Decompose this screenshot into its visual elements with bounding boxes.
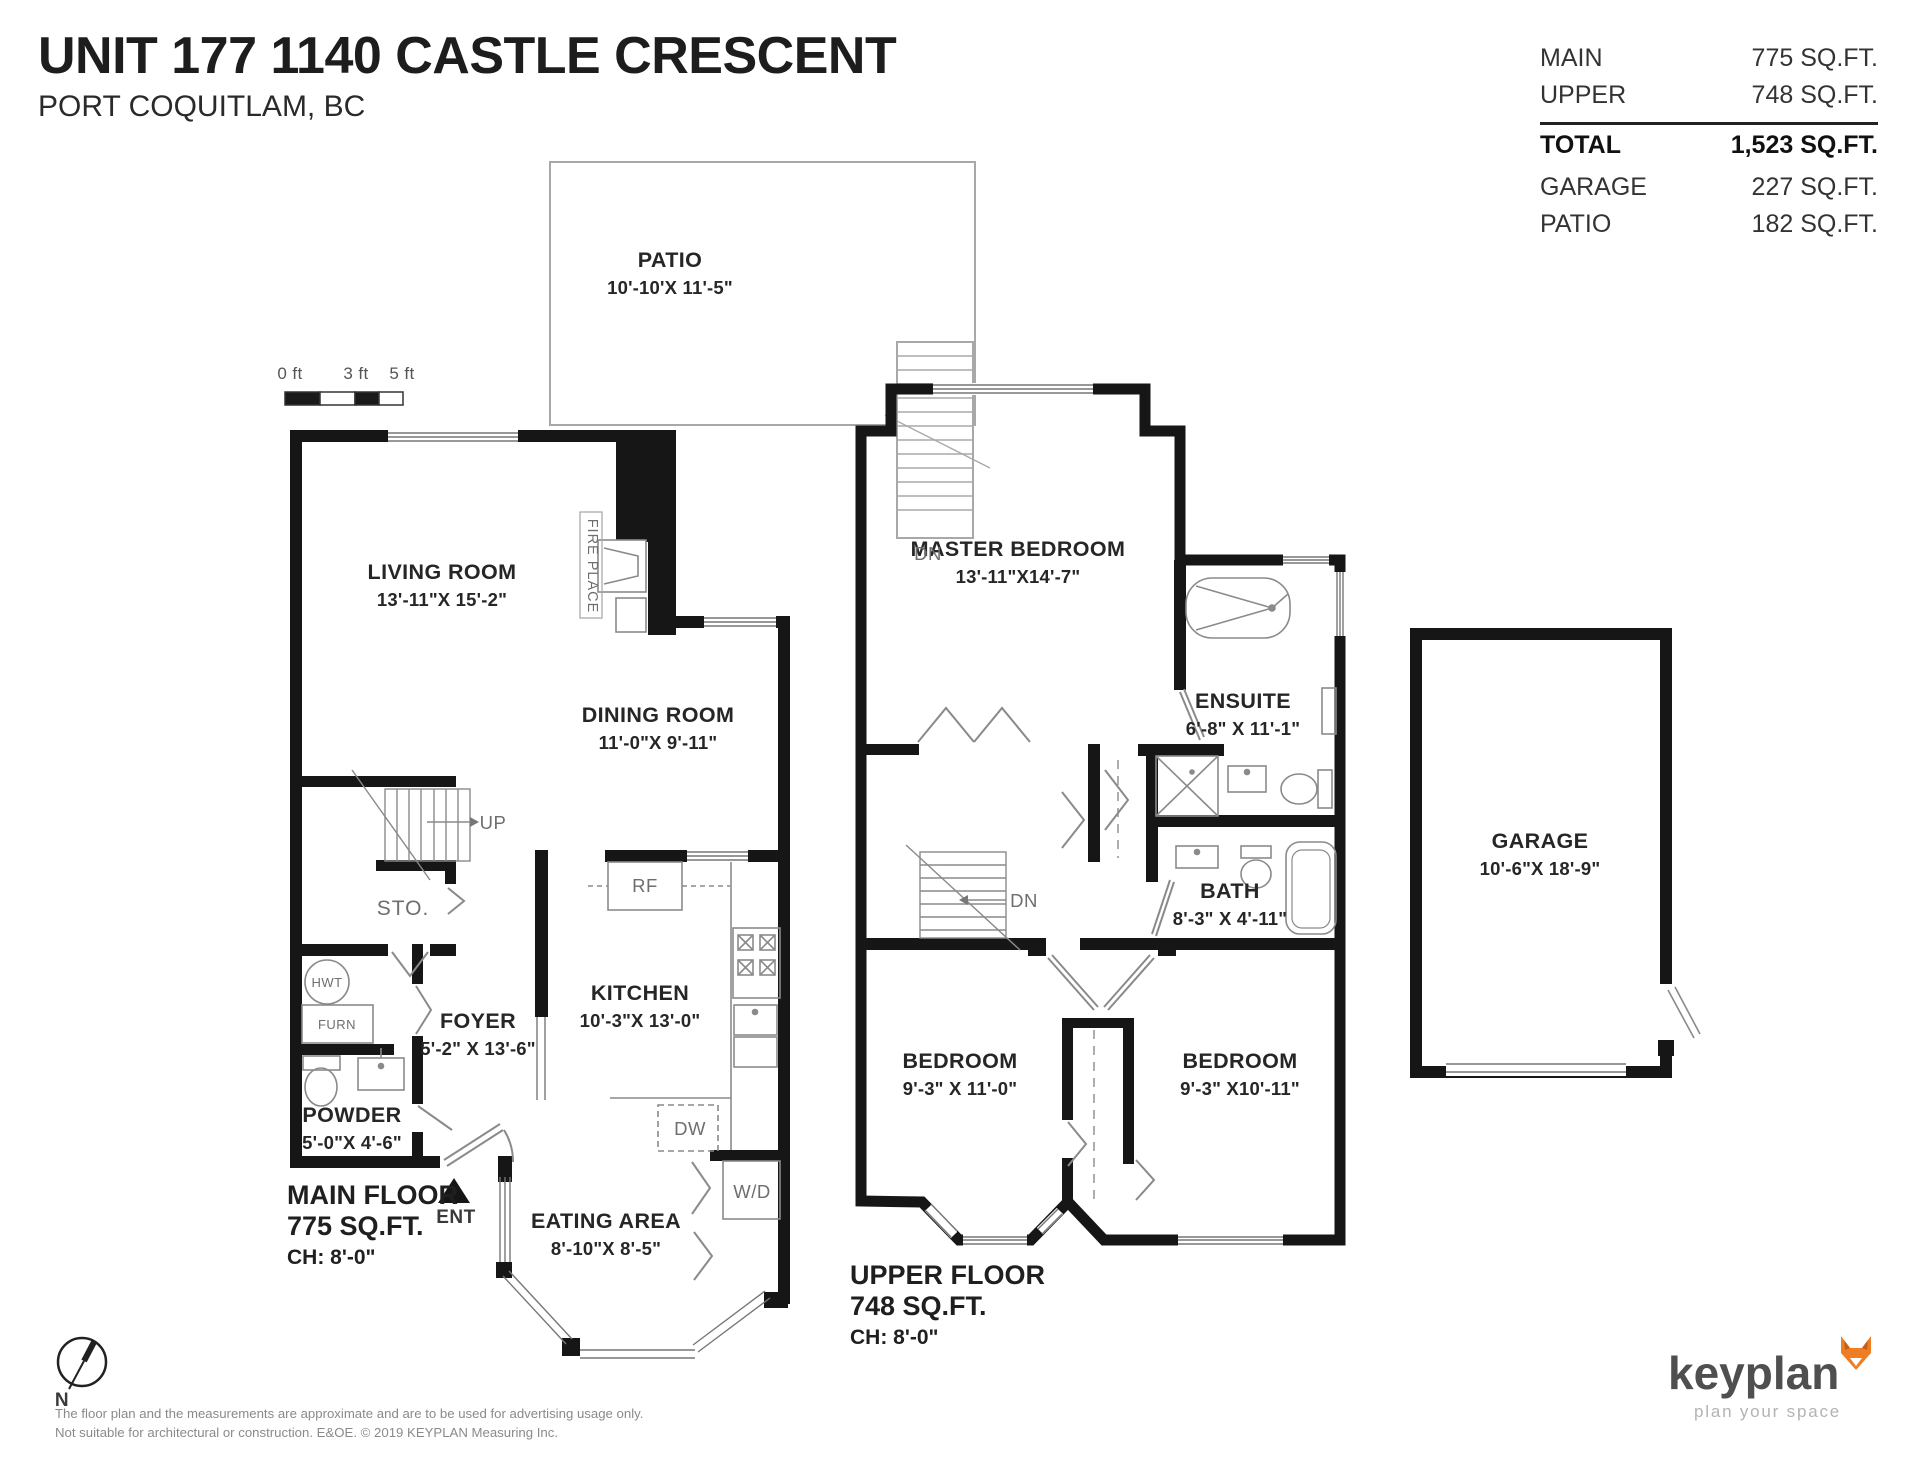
ensuite-door xyxy=(1322,688,1336,734)
label-text: EATING AREA xyxy=(531,1209,681,1234)
area-row-label: GARAGE xyxy=(1540,173,1647,202)
label-text: ENT xyxy=(436,1207,476,1229)
toilet xyxy=(303,1056,340,1106)
garage-label: GARAGE10'-6"X 18'-9" xyxy=(1480,829,1601,880)
kitchen-fixtures xyxy=(588,862,780,1219)
storage-label: STO. xyxy=(377,897,430,921)
area-summary-table: MAIN775 SQ.FT.UPPER748 SQ.FT.TOTAL1,523 … xyxy=(1540,44,1878,247)
label-dimensions: 13'-11"X 15'-2" xyxy=(368,589,517,611)
label-text: GARAGE xyxy=(1480,829,1601,854)
label-text: BEDROOM xyxy=(902,1049,1017,1074)
scale-3ft: 3 ft xyxy=(343,364,368,384)
ensuite-toilet xyxy=(1281,770,1332,808)
keyplan-fox-icon xyxy=(1841,1336,1871,1370)
eating-area-label: EATING AREA8'-10"X 8'-5" xyxy=(531,1209,681,1260)
label-dimensions: 9'-3" X10'-11" xyxy=(1180,1078,1300,1100)
logo-name: keyplan xyxy=(1668,1346,1841,1400)
label-text: UP xyxy=(480,812,507,834)
upper-stairs-down xyxy=(906,845,1020,950)
label-text: DN xyxy=(914,543,942,565)
scale-5ft: 5 ft xyxy=(389,364,414,384)
label-text: RF xyxy=(632,875,658,897)
disclaimer: The floor plan and the measurements are … xyxy=(55,1404,643,1442)
scale-bar xyxy=(285,392,403,405)
kitchen-label: KITCHEN10'-3"X 13'-0" xyxy=(580,981,701,1032)
logo-tagline: plan your space xyxy=(1694,1402,1841,1422)
label-text: DINING ROOM xyxy=(582,703,735,728)
label-text: DW xyxy=(674,1118,706,1140)
disclaimer-line-1: The floor plan and the measurements are … xyxy=(55,1404,643,1423)
label-dimensions: 8'-3" X 4'-11" xyxy=(1173,908,1288,930)
label-text: 0 ft xyxy=(277,364,302,384)
ceiling-height: CH: 8'-0" xyxy=(287,1246,458,1270)
hot-water-tank-label: HWT xyxy=(311,975,342,990)
furnace-label: FURN xyxy=(318,1017,356,1032)
label-text: W/D xyxy=(733,1181,770,1203)
fireplace-firebox xyxy=(598,540,646,632)
label-text: KITCHEN xyxy=(580,981,701,1006)
area-row-label: PATIO xyxy=(1540,210,1611,239)
page-subtitle: PORT COQUITLAM, BC xyxy=(38,90,896,124)
label-text: HWT xyxy=(311,975,342,990)
label-text: 5 ft xyxy=(389,364,414,384)
stove xyxy=(733,928,780,998)
label-dimensions: 10'-6"X 18'-9" xyxy=(1480,858,1601,880)
upper-floor-windows xyxy=(925,383,1346,1246)
upper-floor-label: UPPER FLOOR748 SQ.FT.CH: 8'-0" xyxy=(850,1260,1045,1350)
ensuite-bathtub xyxy=(1186,578,1290,638)
kitchen-sink xyxy=(734,1005,777,1067)
label-dimensions: 6'-8" X 11'-1" xyxy=(1186,718,1301,740)
area-row-patio: PATIO182 SQ.FT. xyxy=(1540,210,1878,247)
powder-label: POWDER5'-0"X 4'-6" xyxy=(302,1103,402,1154)
label-dimensions: 10'-10'X 11'-5" xyxy=(607,277,733,299)
label-text: FOYER xyxy=(420,1009,536,1034)
label-dimensions: 11'-0"X 9'-11" xyxy=(582,732,735,754)
washer-dryer-label: W/D xyxy=(733,1181,770,1203)
label-text: BATH xyxy=(1173,879,1288,904)
area-row-label: MAIN xyxy=(1540,44,1603,73)
label-text: STO. xyxy=(377,897,430,921)
label-text: LIVING ROOM xyxy=(368,560,517,585)
floor-label-line: MAIN FLOOR xyxy=(287,1180,458,1211)
foyer-label: FOYER5'-2" X 13'-6" xyxy=(420,1009,536,1060)
living-room-label: LIVING ROOM13'-11"X 15'-2" xyxy=(368,560,517,611)
north-arrow-icon xyxy=(58,1338,106,1389)
bath-tub xyxy=(1286,842,1336,934)
fireplace-label: FIRE PLACE xyxy=(584,519,600,614)
area-row-value: 227 SQ.FT. xyxy=(1752,173,1878,202)
up-label: UP xyxy=(480,812,507,834)
label-dimensions: 5'-2" X 13'-6" xyxy=(420,1038,536,1060)
area-row-main: MAIN775 SQ.FT. xyxy=(1540,44,1878,81)
ensuite-sink xyxy=(1228,766,1266,792)
fridge-label: RF xyxy=(632,875,658,897)
label-text: PATIO xyxy=(607,248,733,273)
label-text: DN xyxy=(1010,890,1038,912)
floor-label-line: 775 SQ.FT. xyxy=(287,1211,458,1242)
keyplan-logo: keyplan plan your space xyxy=(1668,1346,1841,1422)
label-dimensions: 8'-10"X 8'-5" xyxy=(531,1238,681,1260)
floor-plan-page: UNIT 177 1140 CASTLE CRESCENT PORT COQUI… xyxy=(0,0,1920,1484)
ensuite-label: ENSUITE6'-8" X 11'-1" xyxy=(1186,689,1301,740)
up-arrowhead xyxy=(470,817,479,827)
scale-0ft: 0 ft xyxy=(277,364,302,384)
floor-label-line: UPPER FLOOR xyxy=(850,1260,1045,1291)
table-rule xyxy=(1540,122,1878,125)
dn-upper-label: DN xyxy=(1010,890,1038,912)
label-text: FURN xyxy=(318,1017,356,1032)
shower xyxy=(1156,756,1218,816)
patio-label: PATIO10'-10'X 11'-5" xyxy=(607,248,733,299)
label-dimensions: 5'-0"X 4'-6" xyxy=(302,1132,402,1154)
dn-patio-label: DN xyxy=(914,543,942,565)
area-row-label: UPPER xyxy=(1540,81,1626,110)
label-dimensions: 10'-3"X 13'-0" xyxy=(580,1010,701,1032)
area-row-label: TOTAL xyxy=(1540,131,1621,160)
main-floor-label: MAIN FLOOR775 SQ.FT.CH: 8'-0" xyxy=(287,1180,458,1270)
bath-sink xyxy=(1176,846,1218,868)
label-text: FIRE PLACE xyxy=(584,519,600,614)
label-dimensions: 13'-11"X14'-7" xyxy=(911,566,1126,588)
dining-room-label: DINING ROOM11'-0"X 9'-11" xyxy=(582,703,735,754)
area-row-value: 775 SQ.FT. xyxy=(1752,44,1878,73)
dishwasher-label: DW xyxy=(674,1118,706,1140)
label-dimensions: 9'-3" X 11'-0" xyxy=(902,1078,1017,1100)
label-text: POWDER xyxy=(302,1103,402,1128)
bedroom-left-label: BEDROOM9'-3" X 11'-0" xyxy=(902,1049,1017,1100)
area-row-upper: UPPER748 SQ.FT. xyxy=(1540,81,1878,118)
label-text: BEDROOM xyxy=(1180,1049,1300,1074)
bedroom-right-label: BEDROOM9'-3" X10'-11" xyxy=(1180,1049,1300,1100)
page-title: UNIT 177 1140 CASTLE CRESCENT xyxy=(38,26,896,86)
area-row-garage: GARAGE227 SQ.FT. xyxy=(1540,173,1878,210)
disclaimer-line-2: Not suitable for architectural or constr… xyxy=(55,1423,643,1442)
master-bedroom-label: MASTER BEDROOM13'-11"X14'-7" xyxy=(911,537,1126,588)
header: UNIT 177 1140 CASTLE CRESCENT PORT COQUI… xyxy=(38,26,896,124)
entry-label: ENT xyxy=(436,1207,476,1229)
floor-label-line: 748 SQ.FT. xyxy=(850,1291,1045,1322)
area-row-value: 748 SQ.FT. xyxy=(1752,81,1878,110)
label-text: 3 ft xyxy=(343,364,368,384)
bath-label: BATH8'-3" X 4'-11" xyxy=(1173,879,1288,930)
area-row-value: 1,523 SQ.FT. xyxy=(1731,131,1878,160)
area-row-total: TOTAL1,523 SQ.FT. xyxy=(1540,131,1878,173)
area-row-value: 182 SQ.FT. xyxy=(1752,210,1878,239)
label-text: ENSUITE xyxy=(1186,689,1301,714)
label-text: MASTER BEDROOM xyxy=(911,537,1126,562)
ceiling-height: CH: 8'-0" xyxy=(850,1326,1045,1350)
